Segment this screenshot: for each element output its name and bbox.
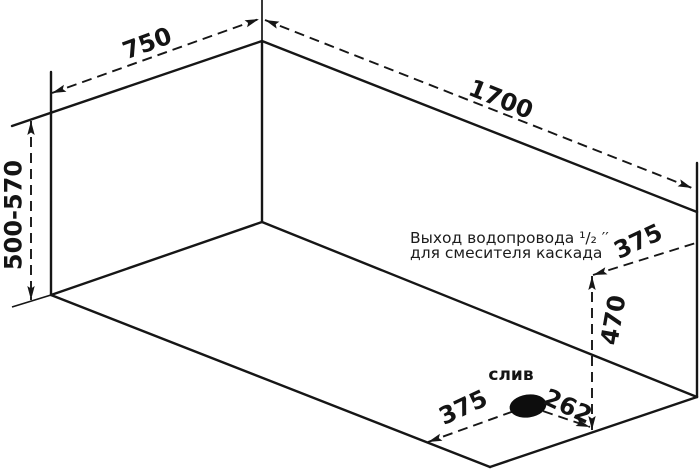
- outlet-note: Выход водопровода ¹/₂ ′′ для смесителя к…: [410, 229, 609, 262]
- floor-edge-front-left: [51, 295, 490, 467]
- rim-edge-right: [262, 41, 697, 212]
- label-outlet-height-470: 470: [595, 293, 631, 347]
- bathtub-dimension-diagram: 750 1700 500-570 375 470 375 262 слив Вы…: [0, 0, 700, 469]
- diagram-canvas: 750 1700 500-570 375 470 375 262 слив Вы…: [0, 0, 700, 469]
- label-drain: слив: [488, 365, 533, 385]
- label-drain-offset-375: 375: [435, 384, 492, 431]
- label-outlet-offset-375: 375: [610, 218, 667, 265]
- label-drain-offset-262: 262: [539, 383, 596, 430]
- dimension-labels: 750 1700 500-570 375 470 375 262 слив: [0, 22, 667, 431]
- label-height-500-570: 500-570: [0, 160, 27, 270]
- floor-edge-back-left: [51, 222, 262, 295]
- outlet-note-line2: для смесителя каскада: [410, 244, 602, 262]
- extension-line-left-corner: [12, 295, 51, 307]
- label-length-1700: 1700: [465, 74, 537, 125]
